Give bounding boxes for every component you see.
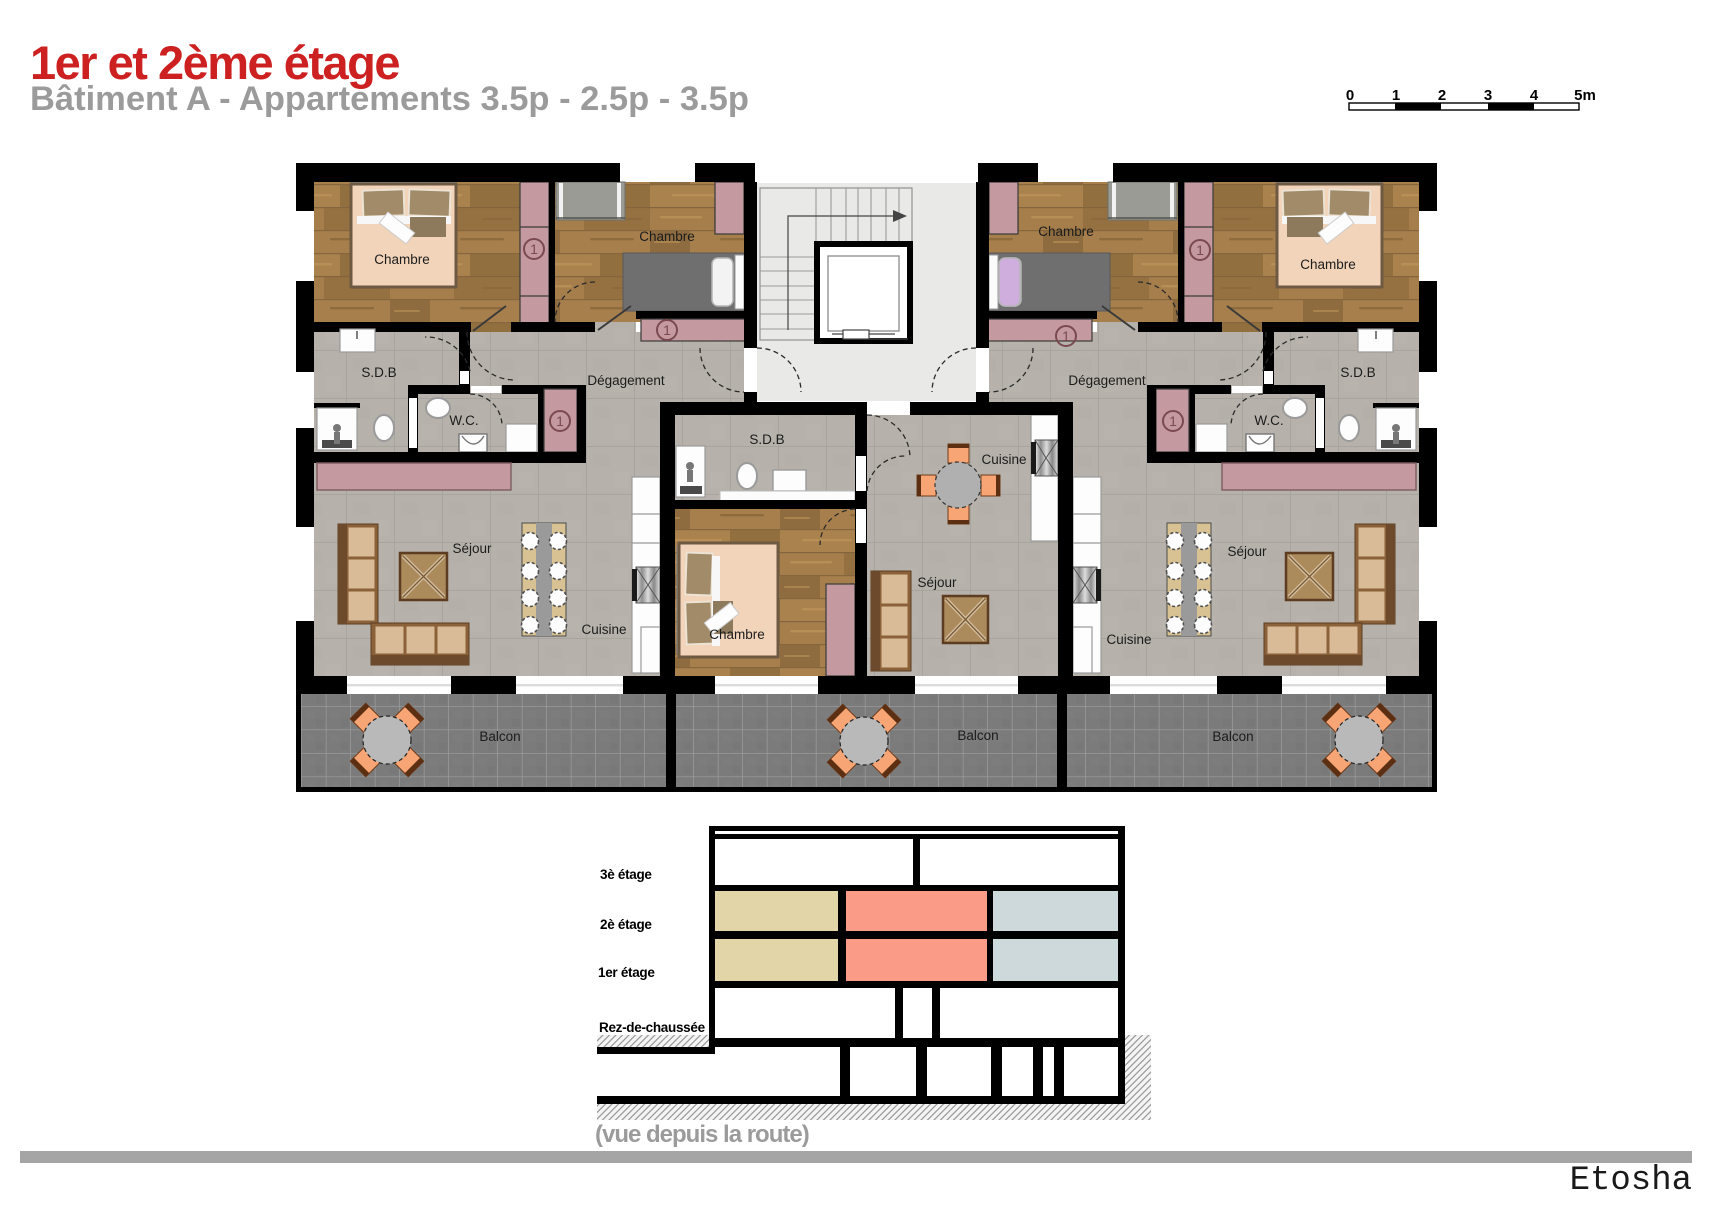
svg-text:3è étage: 3è étage [600, 867, 652, 882]
svg-text:Chambre: Chambre [1038, 224, 1094, 239]
svg-text:S.D.B: S.D.B [1340, 365, 1375, 380]
svg-text:Rez-de-chaussée: Rez-de-chaussée [599, 1020, 706, 1035]
svg-text:Cuisine: Cuisine [1106, 632, 1151, 647]
svg-text:2: 2 [1438, 87, 1446, 104]
svg-text:Séjour: Séjour [1227, 544, 1267, 559]
svg-text:5m: 5m [1574, 87, 1596, 104]
svg-text:4: 4 [1530, 87, 1539, 104]
svg-text:1: 1 [1196, 242, 1204, 258]
svg-text:1: 1 [1169, 413, 1177, 429]
svg-text:2è étage: 2è étage [600, 917, 652, 932]
svg-text:Chambre: Chambre [1300, 257, 1356, 272]
svg-text:1: 1 [1392, 87, 1400, 104]
svg-text:Cuisine: Cuisine [981, 452, 1026, 467]
svg-text:Séjour: Séjour [917, 575, 957, 590]
svg-text:1: 1 [663, 322, 671, 338]
svg-text:Balcon: Balcon [479, 729, 520, 744]
svg-text:1: 1 [1062, 328, 1070, 344]
svg-text:Dégagement: Dégagement [1068, 373, 1146, 388]
svg-text:Chambre: Chambre [639, 229, 695, 244]
svg-text:Balcon: Balcon [1212, 729, 1253, 744]
svg-text:Balcon: Balcon [957, 728, 998, 743]
svg-text:Chambre: Chambre [709, 627, 765, 642]
svg-text:1: 1 [556, 413, 564, 429]
svg-text:0: 0 [1346, 87, 1354, 104]
svg-text:Séjour: Séjour [452, 541, 492, 556]
svg-text:Cuisine: Cuisine [581, 622, 626, 637]
svg-text:(vue depuis la route): (vue depuis la route) [595, 1121, 809, 1148]
svg-text:1er étage: 1er étage [598, 965, 655, 980]
svg-text:S.D.B: S.D.B [361, 365, 396, 380]
svg-text:W.C.: W.C. [449, 413, 478, 428]
svg-text:Bâtiment A - Appartements 3.5p: Bâtiment A - Appartements 3.5p - 2.5p - … [30, 80, 749, 118]
svg-text:3: 3 [1484, 87, 1492, 104]
svg-text:W.C.: W.C. [1254, 413, 1283, 428]
svg-text:Chambre: Chambre [374, 252, 430, 267]
svg-text:1: 1 [530, 241, 538, 257]
svg-text:Dégagement: Dégagement [587, 373, 665, 388]
svg-text:S.D.B: S.D.B [749, 432, 784, 447]
svg-text:Etosha: Etosha [1570, 1162, 1692, 1200]
